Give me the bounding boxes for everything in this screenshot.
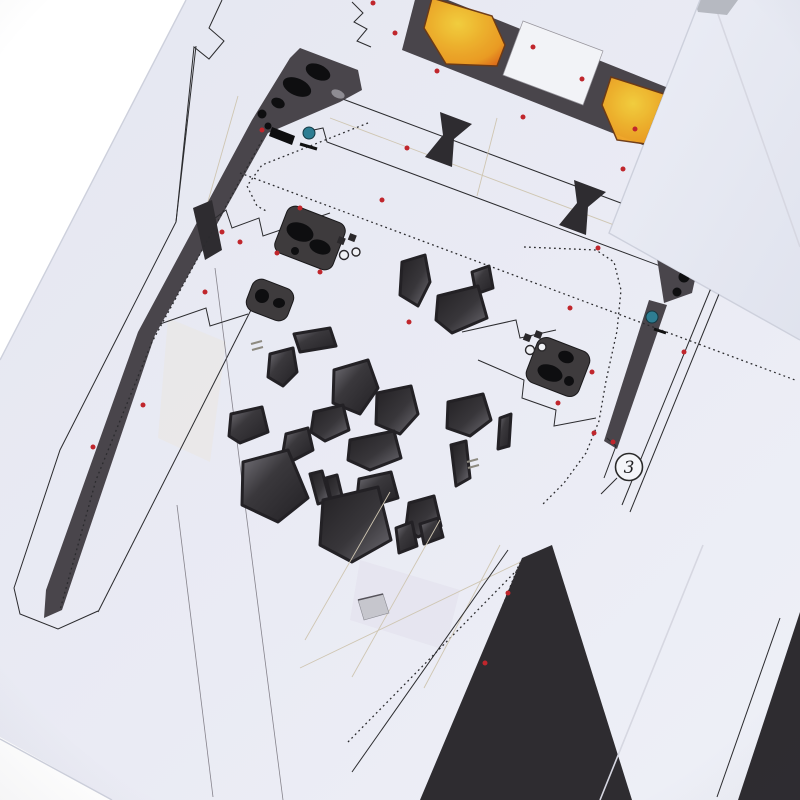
vignette-overlay xyxy=(0,0,800,800)
photo-canvas: 3 xyxy=(0,0,800,800)
